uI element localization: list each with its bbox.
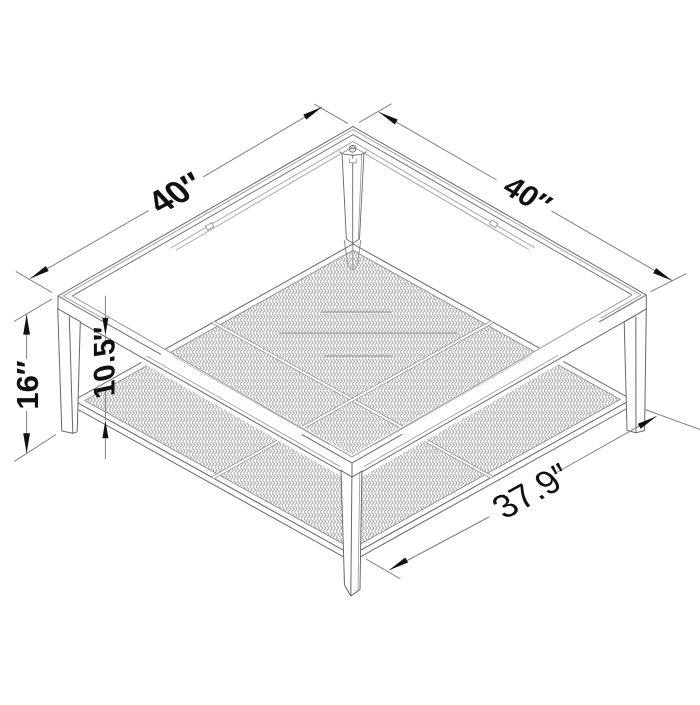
svg-text:16″: 16″ <box>10 360 45 409</box>
svg-text:10.5″: 10.5″ <box>89 322 122 402</box>
